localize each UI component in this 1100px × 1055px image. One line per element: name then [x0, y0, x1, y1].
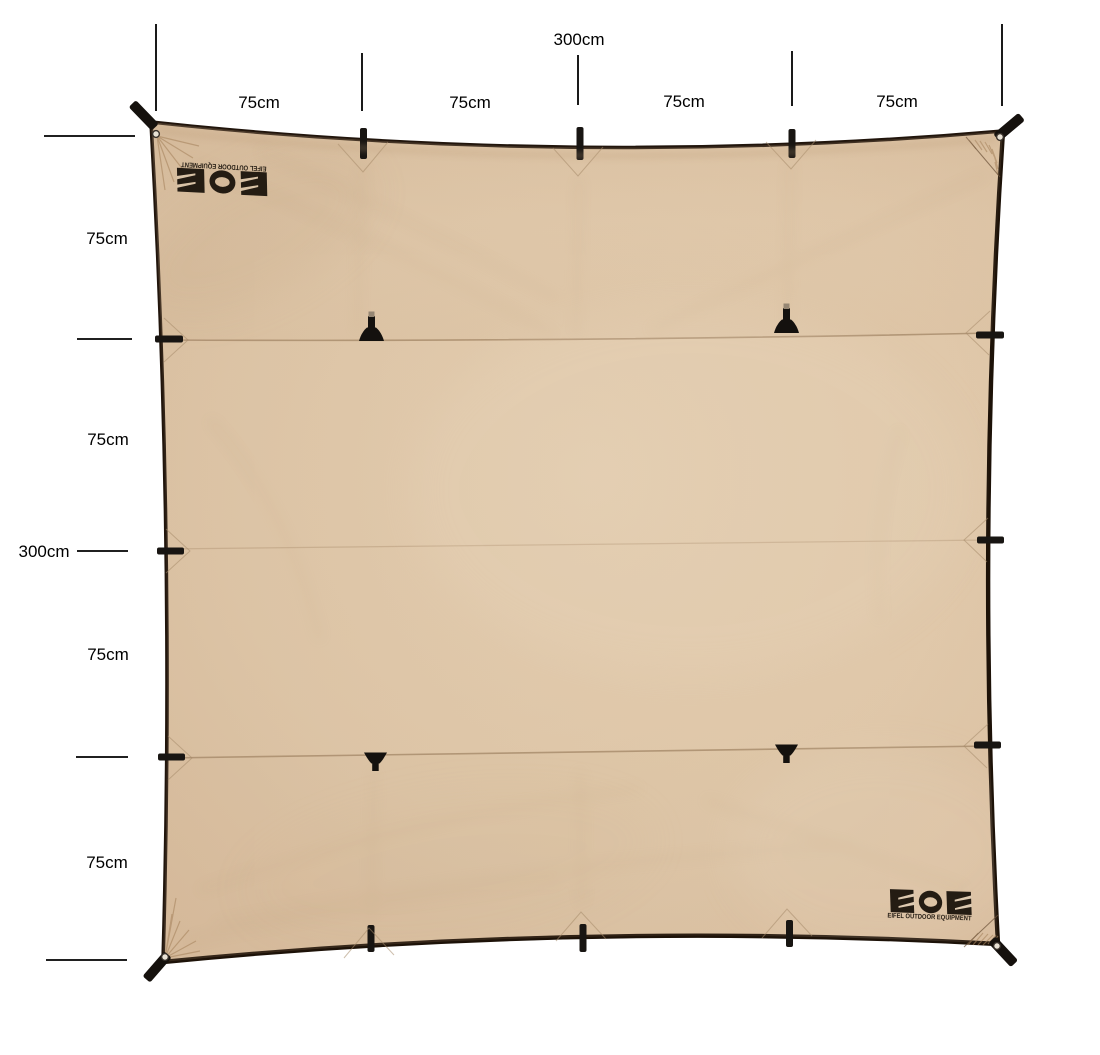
svg-text:75cm: 75cm [86, 229, 128, 248]
svg-text:75cm: 75cm [87, 645, 129, 664]
svg-text:75cm: 75cm [238, 93, 280, 112]
svg-text:300cm: 300cm [553, 30, 604, 49]
svg-text:75cm: 75cm [663, 92, 705, 111]
svg-text:75cm: 75cm [86, 853, 128, 872]
svg-text:75cm: 75cm [449, 93, 491, 112]
svg-text:75cm: 75cm [876, 92, 918, 111]
svg-text:300cm: 300cm [18, 542, 69, 561]
svg-text:75cm: 75cm [87, 430, 129, 449]
